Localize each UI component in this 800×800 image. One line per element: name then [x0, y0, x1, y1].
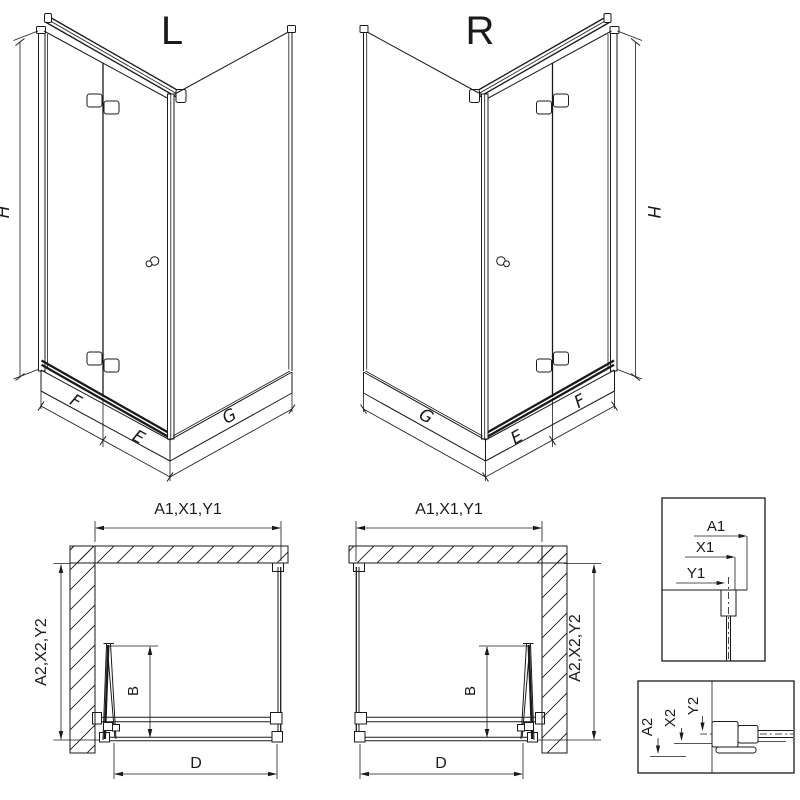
iso-right-dim-e-label: E [508, 426, 527, 449]
detail-floor-dim-a2-label: A2 [639, 718, 656, 736]
plan-view-left: A1,X1,Y1 A2,X2,Y2 B D [33, 501, 288, 779]
plan-view-right: A1,X1,Y1 A2,X2,Y2 B D [349, 501, 601, 779]
plan-right-dim-d-label: D [435, 755, 447, 772]
detail-wall-dim-y1-label: Y1 [687, 565, 705, 582]
iso-view-right: R H F E G [360, 9, 663, 482]
iso-left-dim-h-label: H [0, 205, 14, 218]
detail-wall-dim-x1-label: X1 [696, 539, 714, 556]
iso-right-dim-h-label: H [643, 206, 663, 219]
detail-floor-dim-x2-label: X2 [662, 709, 679, 727]
iso-left-dim-e-label: E [129, 426, 148, 449]
iso-left-title: L [161, 9, 183, 53]
plan-right-dim-a2-label: A2,X2,Y2 [567, 614, 584, 682]
technical-drawing-page: L H F E G R H F E G A1,X1,Y1 A2,X2,Y2 B … [0, 0, 800, 800]
diagram-canvas: L H F E G R H F E G A1,X1,Y1 A2,X2,Y2 B … [0, 0, 800, 800]
plan-right-dim-a1-label: A1,X1,Y1 [415, 501, 483, 518]
iso-left-dim-g-label: G [219, 405, 240, 429]
detail-wall-dim-a1-label: A1 [707, 518, 725, 535]
iso-left-dim-f-label: F [66, 391, 84, 413]
plan-left-dim-a2-label: A2,X2,Y2 [33, 618, 50, 686]
plan-left-dim-b-label: B [125, 686, 142, 696]
detail-floor-geometry [700, 681, 793, 773]
iso-right-dim-f-label: F [571, 390, 589, 412]
detail-view-wall-profile: A1 X1 Y1 [662, 498, 765, 661]
detail-floor-dims [650, 716, 712, 757]
iso-right-linework [360, 14, 642, 482]
iso-right-dim-g-label: G [415, 405, 436, 429]
detail-view-floor-profile: A2 X2 Y2 [638, 681, 794, 773]
iso-view-left: L H F E G [0, 9, 296, 482]
plan-left-dim-d-label: D [190, 755, 202, 772]
iso-left-linework [14, 14, 296, 482]
iso-right-title: R [466, 9, 495, 53]
plan-right-dim-b-label: B [462, 686, 479, 696]
detail-floor-dim-y2-label: Y2 [685, 697, 702, 715]
plan-left-dim-a1-label: A1,X1,Y1 [154, 501, 222, 518]
